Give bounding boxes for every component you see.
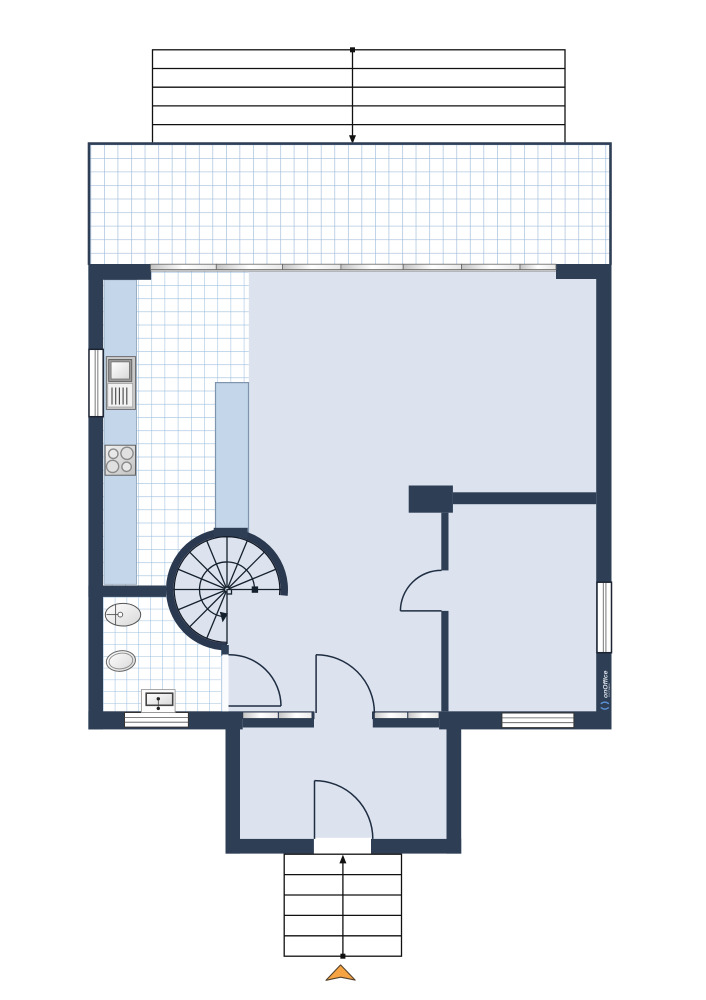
svg-text:SOFTWARE: SOFTWARE (608, 683, 611, 697)
